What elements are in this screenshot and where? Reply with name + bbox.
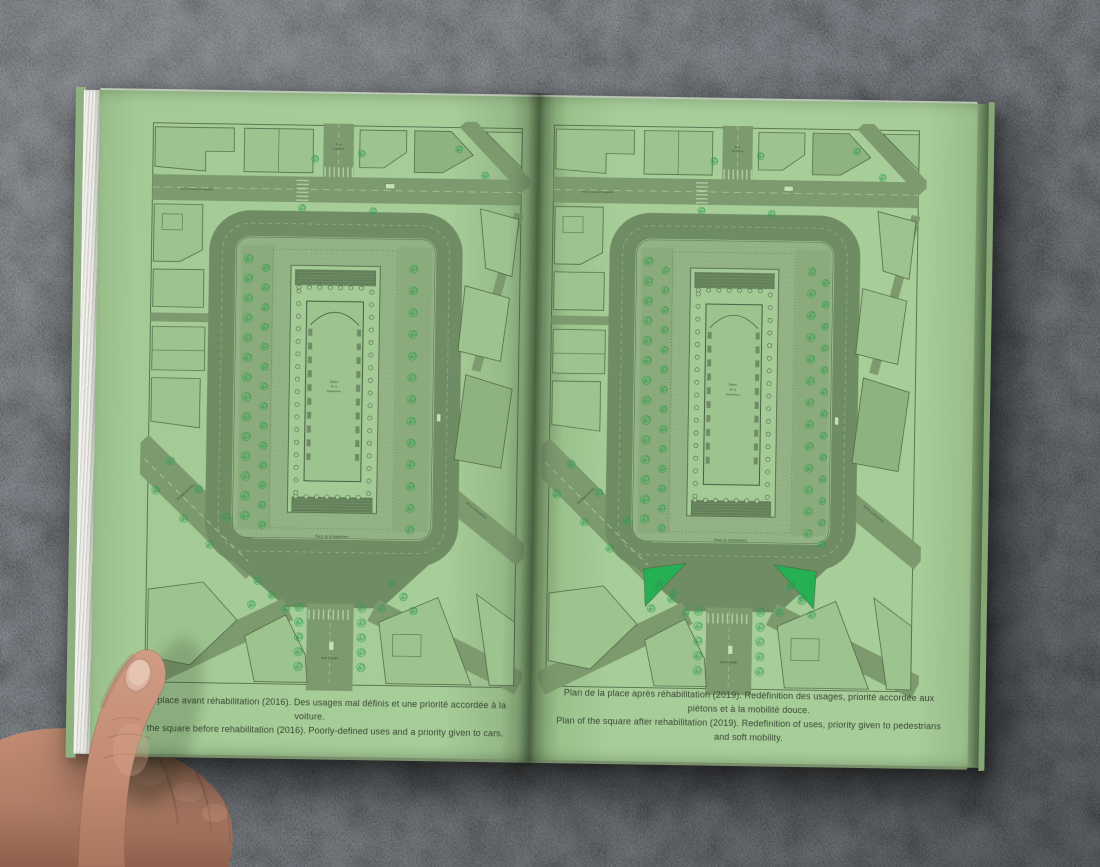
svg-text:Rue Chauveau Lagarde: Rue Chauveau Lagarde [181,187,214,191]
svg-text:Madeleine: Madeleine [726,393,740,397]
hand-thumb [28,598,238,867]
svg-text:Tronchet: Tronchet [732,149,744,153]
svg-text:Rue: Rue [735,145,741,149]
right-page: Églisede laMadeleineRue Chauveau Lagarde… [529,97,978,767]
svg-text:Place de la Madeleine: Place de la Madeleine [714,538,748,543]
svg-text:de la: de la [730,388,737,392]
church-madeleine: Églisede laMadeleine [287,265,380,513]
svg-text:de la: de la [331,384,338,388]
svg-text:Rue Chauveau Lagarde: Rue Chauveau Lagarde [582,189,614,193]
svg-text:Rue Royale: Rue Royale [720,660,737,664]
caption-right: Plan de la place après réhabilitation (2… [551,686,947,748]
svg-text:Tronchet: Tronchet [333,147,345,151]
svg-text:Rue: Rue [336,142,342,146]
svg-text:Place de la Madeleine: Place de la Madeleine [315,534,349,538]
svg-text:Rue Royale: Rue Royale [321,656,338,660]
church-madeleine: Églisede laMadeleine [687,268,779,517]
svg-text:Église: Église [729,382,738,387]
svg-text:Madeleine: Madeleine [327,389,341,393]
svg-text:Église: Église [330,378,339,383]
site-plan-after-2019: Églisede laMadeleineRue Chauveau Lagarde… [538,119,928,700]
caption-right-en: Plan of the square after rehabilitation … [551,714,947,748]
photo-scene: Églisede laMadeleineRue Chauveau Lagarde… [0,0,1100,867]
